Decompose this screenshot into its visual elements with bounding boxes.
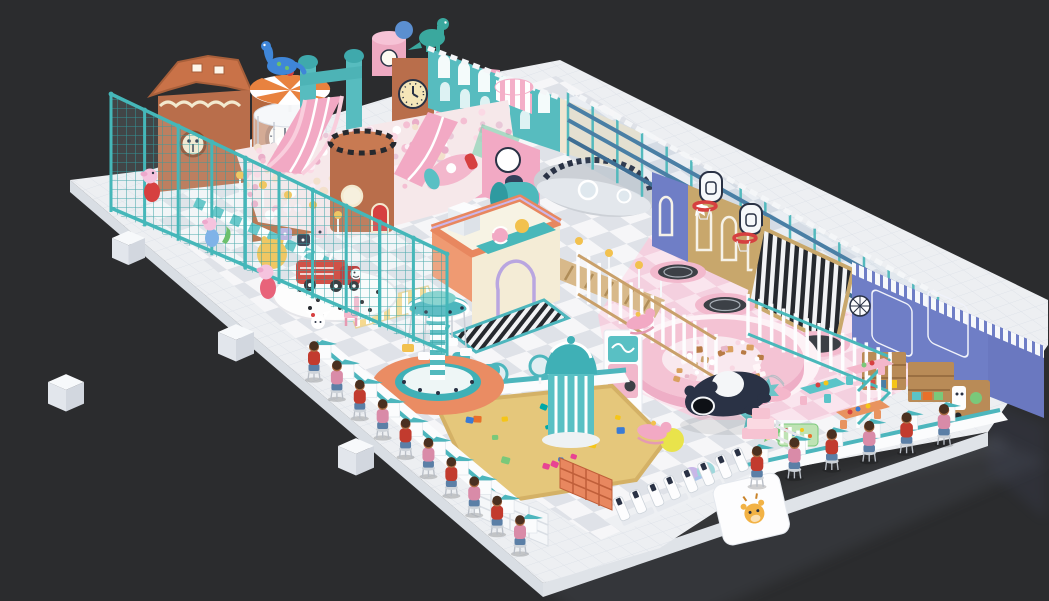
post-cap — [243, 156, 248, 161]
sand-toy — [617, 427, 625, 434]
marshmallow — [741, 340, 745, 344]
pole-ball — [605, 249, 613, 257]
sand-toy — [473, 416, 482, 423]
cookie-block — [676, 368, 682, 373]
ball — [323, 133, 328, 138]
cube-stool — [338, 438, 374, 475]
tower-porthole — [342, 186, 362, 206]
cube-stool — [218, 324, 254, 361]
pole-ball — [575, 237, 583, 245]
tunnel-opening — [692, 398, 714, 415]
post-cap — [411, 236, 416, 241]
marshmallow — [755, 357, 760, 362]
blue-dome — [395, 21, 413, 39]
trampoline — [650, 261, 706, 283]
ball — [412, 124, 418, 130]
ball — [260, 158, 266, 164]
post-cap — [310, 188, 315, 193]
toy-ball-yellow — [515, 219, 529, 233]
playground-render — [0, 0, 1049, 601]
marshmallow — [686, 353, 692, 359]
sand-toy — [501, 416, 508, 422]
roof-window — [214, 66, 224, 74]
post-cap — [445, 252, 450, 257]
ball — [460, 118, 467, 125]
marshmallow — [695, 370, 699, 374]
post-cap — [209, 140, 214, 145]
trampoline — [695, 293, 755, 317]
pole-ball — [635, 261, 643, 269]
ball — [313, 178, 320, 185]
cube-stool — [112, 231, 145, 265]
ball — [256, 148, 262, 154]
marshmallow — [730, 365, 735, 370]
post-cap — [109, 92, 114, 97]
post-cap — [176, 124, 181, 129]
ball — [402, 184, 407, 189]
roof-window — [192, 64, 202, 72]
ball — [496, 121, 503, 128]
playground-render-stage — [0, 0, 1049, 601]
post-cap — [277, 172, 282, 177]
panel-clock — [496, 148, 520, 172]
spiral-target-decal — [850, 296, 870, 316]
porthole — [618, 190, 631, 203]
ball — [478, 109, 485, 116]
post-cap — [142, 108, 147, 113]
porthole — [579, 181, 597, 199]
ball — [403, 121, 410, 128]
post-cap — [377, 220, 382, 225]
wooden-toy-shelf — [908, 362, 954, 402]
post-cap — [344, 204, 349, 209]
marshmallow — [735, 340, 740, 345]
marshmallow — [709, 359, 715, 365]
cube-stool — [48, 374, 84, 411]
sand-toy — [492, 435, 499, 440]
cookie-block — [746, 344, 754, 350]
pylon-dome — [344, 49, 364, 63]
